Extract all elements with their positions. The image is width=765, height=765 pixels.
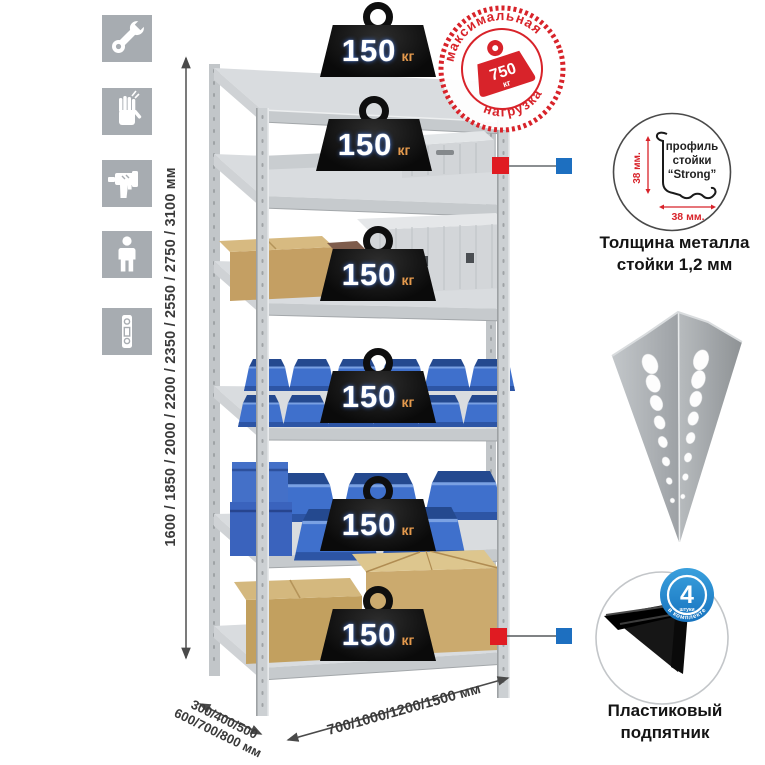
shelf-load-value: 150 [342, 257, 397, 293]
shelf-load-value: 150 [338, 127, 393, 163]
profile-dim-vertical: 38 мм. [632, 152, 643, 184]
shelf-load-unit: кг [401, 394, 414, 410]
shelf-load-unit: кг [401, 272, 414, 288]
red-marker [492, 157, 509, 174]
shelf-load-unit: кг [401, 632, 414, 648]
badge-value: 4 [680, 581, 694, 609]
blue-marker [556, 628, 572, 644]
product-infographic: 150 кг 150 кг 150 кг 150 кг 150 кг [0, 0, 765, 765]
shelf-load-unit: кг [401, 48, 414, 64]
shelf-load-badge: 150 кг [320, 226, 436, 301]
kettlebell-icon: 150 кг [320, 609, 436, 661]
max-load-stamp: максимальная нагрузка 750 кг [434, 1, 570, 137]
profile-detail-circle: 38 мм. 38 мм. профиль стойки “Strong” [610, 110, 734, 234]
profile-label-1: профиль [666, 141, 719, 153]
shelf-load-badge: 150 кг [316, 96, 432, 171]
quantity-badge: 4 штуки в комплекте [660, 568, 714, 622]
shelf-load-unit: кг [401, 522, 414, 538]
cardboard-box [219, 236, 334, 301]
profile-dim-horizontal: 38 мм. [671, 211, 704, 223]
shelf-load-value: 150 [342, 617, 397, 653]
red-marker [490, 628, 507, 645]
profile-label-2: стойки [673, 155, 712, 167]
foot-callout-connector [490, 628, 572, 645]
kettlebell-icon: 150 кг [320, 499, 436, 551]
shelf-load-badge: 150 кг [320, 586, 436, 661]
kettlebell-icon: 150 кг [316, 119, 432, 171]
kettlebell-icon: 150 кг [320, 371, 436, 423]
shelf-load-badge: 150 кг [320, 348, 436, 423]
shelf-load-badge: 150 кг [320, 476, 436, 551]
height-dimension-label: 1600 / 1850 / 2000 / 2200 / 2350 / 2550 … [163, 140, 179, 574]
blue-marker [556, 158, 572, 174]
shelf-load-unit: кг [397, 142, 410, 158]
shelf-load-value: 150 [342, 379, 397, 415]
kettlebell-icon: 150 кг [320, 25, 436, 77]
shelf-load-value: 150 [342, 507, 397, 543]
badge-unit: штуки [679, 607, 694, 613]
shelf-load-badge: 150 кг [320, 2, 436, 77]
profile-label-3: “Strong” [668, 169, 717, 181]
profile-callout-connector [492, 157, 572, 174]
corner-post-image [598, 300, 753, 555]
foot-detail-circle: 4 штуки в комплекте [590, 566, 735, 711]
shelf-load-value: 150 [342, 33, 397, 69]
kettlebell-icon: 150 кг [320, 249, 436, 301]
